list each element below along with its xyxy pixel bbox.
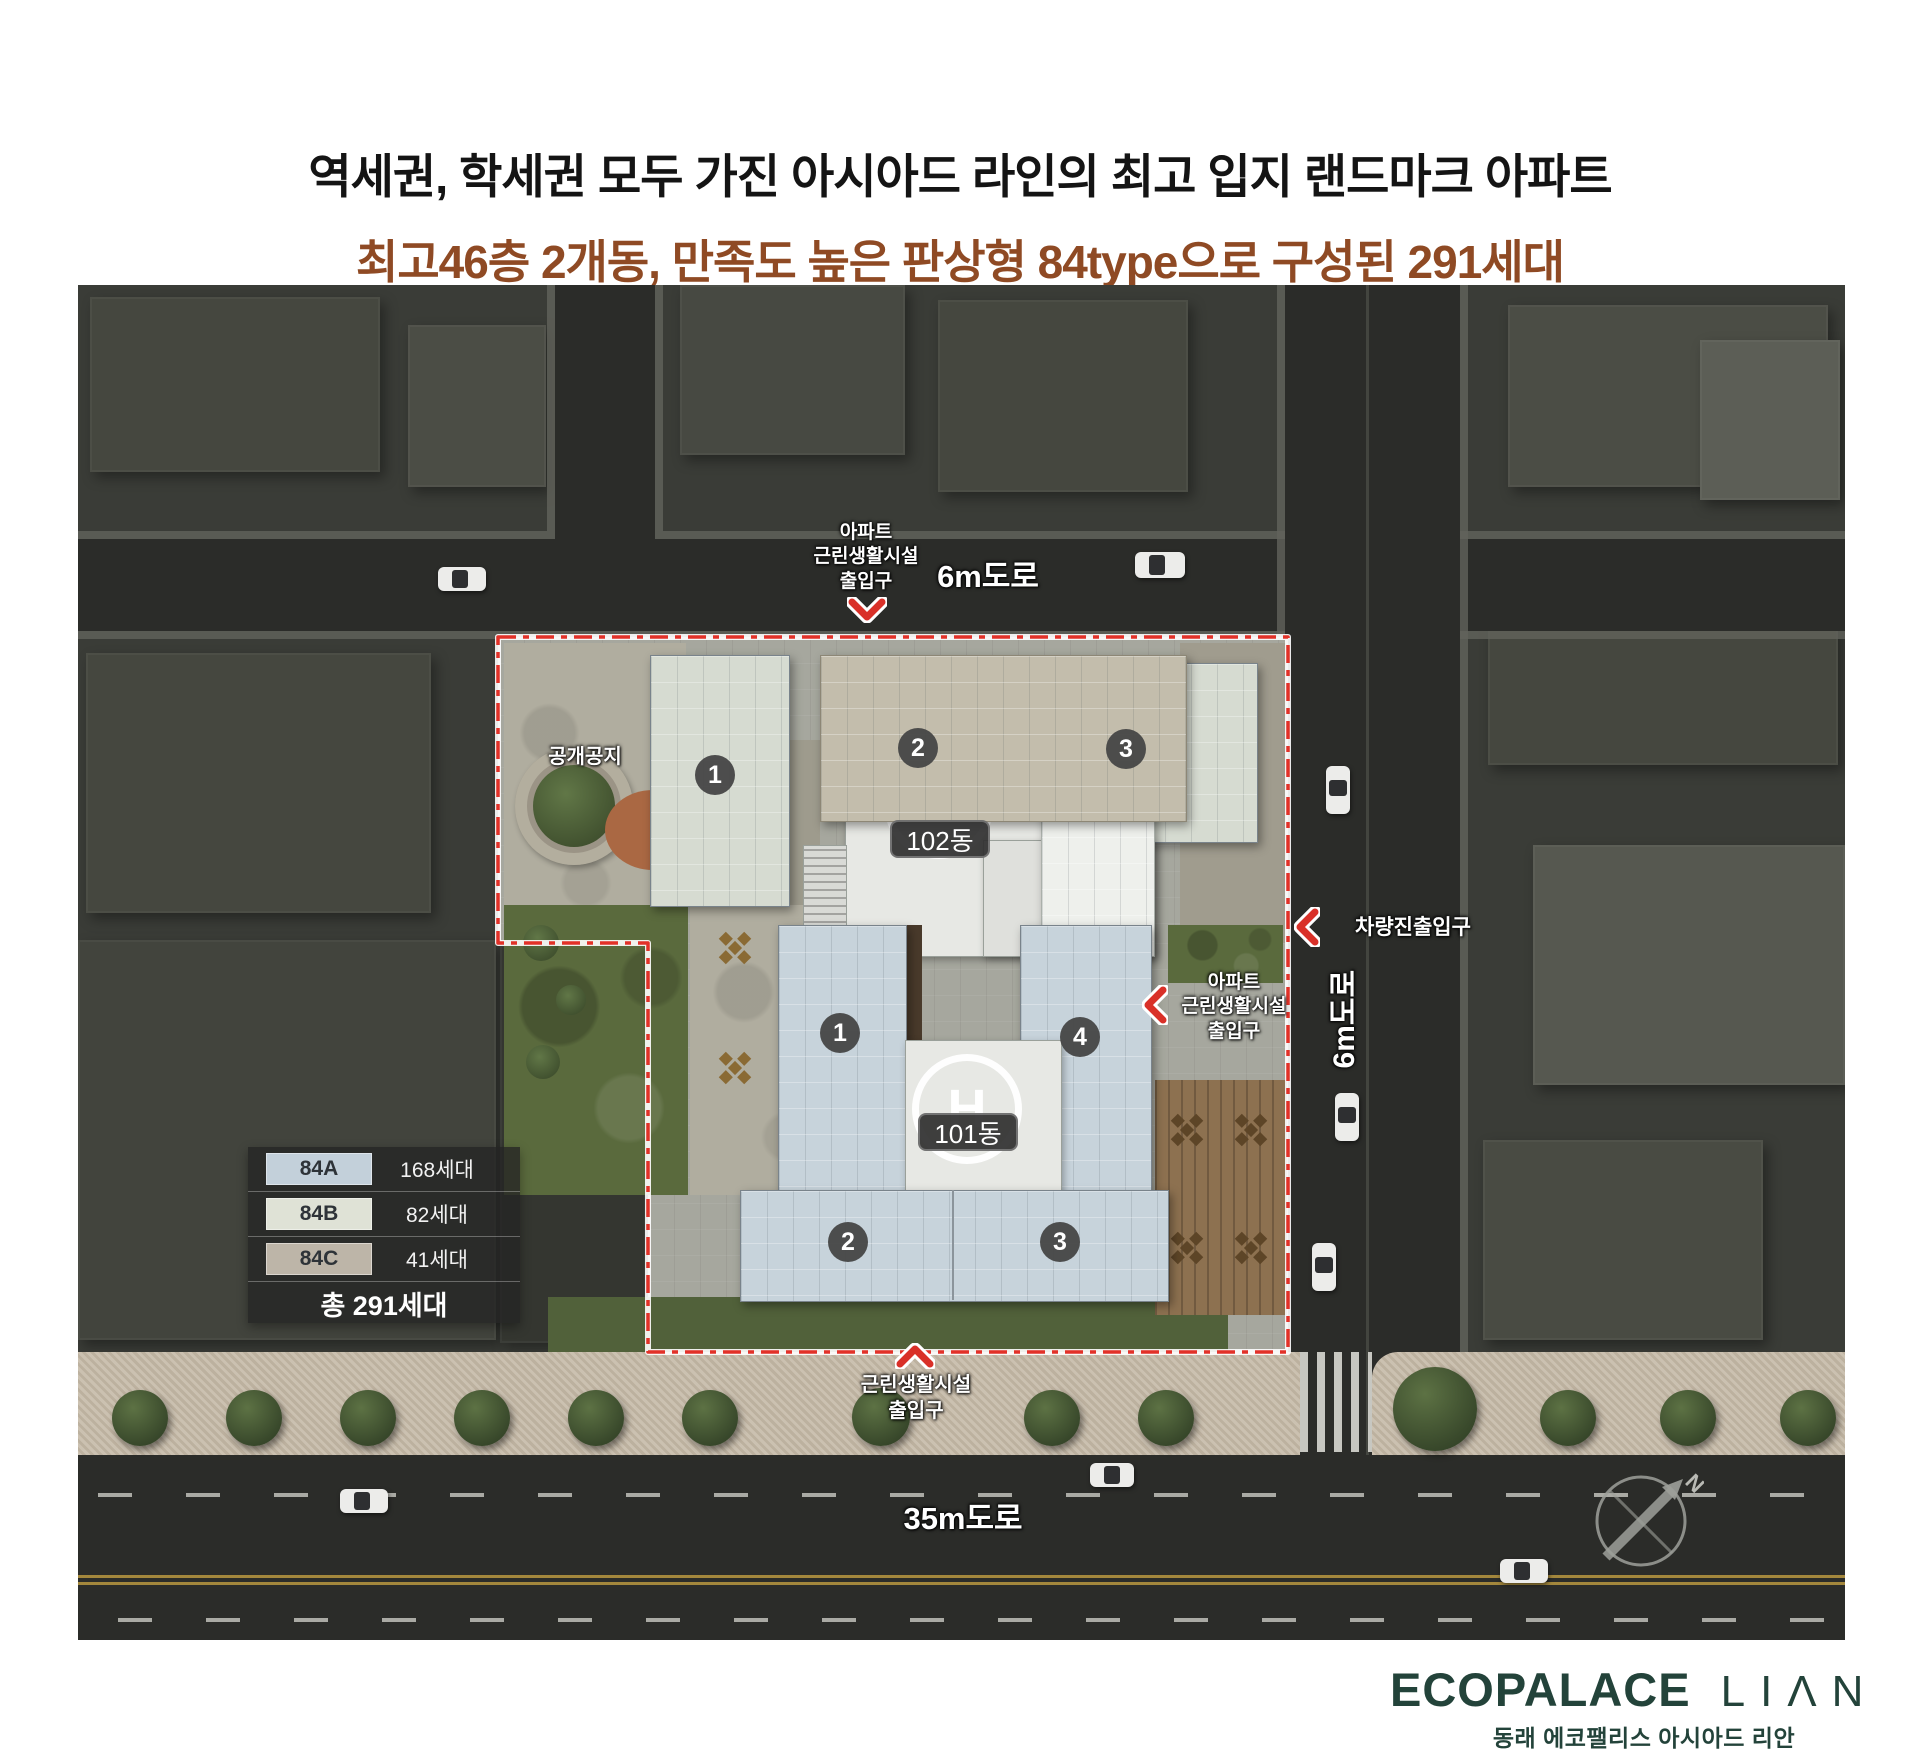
road-edge: [547, 285, 555, 531]
unit-circle-101-3: 3: [1040, 1222, 1080, 1262]
brand-wordmark: ECOPALACE LIΛN: [1390, 1662, 1902, 1717]
entrance-arrow-down-icon: [847, 597, 887, 628]
road-top-east: [1468, 539, 1845, 631]
unit-circle-101-2: 2: [828, 1222, 868, 1262]
street-tree: [226, 1390, 282, 1446]
street-tree: [112, 1390, 168, 1446]
background-building: [680, 285, 905, 455]
label-line: 출입구: [1172, 1020, 1296, 1044]
background-building: [938, 300, 1188, 492]
lane-dashes: [118, 1618, 1845, 1622]
street-tree: [568, 1390, 624, 1446]
road-edge: [655, 285, 663, 531]
shrub: [556, 985, 586, 1015]
apt-entrance-right-label: 아파트 근린생활시설 출입구: [1172, 971, 1296, 1044]
unit-circle-102-1: 1: [695, 755, 735, 795]
unit-circle-101-1: 1: [820, 1013, 860, 1053]
label-line: 근린생활시설: [1172, 995, 1296, 1019]
car: [438, 567, 486, 591]
label-line: 아파트: [800, 521, 932, 545]
page-background: 역세권, 학세권 모두 가진 아시아드 라인의 최고 입지 랜드마크 아파트 최…: [0, 0, 1920, 1755]
background-building: [408, 325, 546, 487]
unit-circle-101-4: 4: [1060, 1017, 1100, 1057]
road-edge: [1460, 285, 1468, 1393]
retail-entrance-bottom-label: 근린생활시설 출입구: [846, 1373, 986, 1424]
retail-arrow-left-icon: [1142, 985, 1168, 1030]
label-line: 출입구: [846, 1399, 986, 1425]
wood-deck: [1155, 1080, 1287, 1315]
vehicle-arrow-left-icon: [1294, 907, 1320, 952]
retail-arrow-up-icon: [895, 1343, 935, 1374]
compass-north-label: N: [1680, 1469, 1704, 1498]
garden: [548, 1297, 1228, 1352]
headline-primary: 역세권, 학세권 모두 가진 아시아드 라인의 최고 입지 랜드마크 아파트: [0, 138, 1920, 207]
car: [1500, 1559, 1548, 1583]
label-line: 아파트: [1172, 971, 1296, 995]
car: [1326, 766, 1350, 814]
street-tree: [340, 1390, 396, 1446]
car: [1312, 1243, 1336, 1291]
street-tree: [682, 1390, 738, 1446]
background-building: [86, 653, 431, 913]
legend-chip-84B: 84B: [266, 1198, 372, 1230]
label-line: 근린생활시설: [846, 1373, 986, 1399]
brand-ecopalace: ECOPALACE: [1390, 1662, 1691, 1717]
street-tree: [454, 1390, 510, 1446]
compass: N: [1584, 1457, 1704, 1577]
street-tree: [1393, 1367, 1477, 1451]
stair-detail: [803, 845, 847, 932]
headline-secondary: 최고46층 2개동, 만족도 높은 판상형 84type으로 구성된 291세대: [0, 226, 1920, 292]
building-102-label: 102동: [890, 820, 990, 858]
car: [340, 1489, 388, 1513]
center-line-yellow: [78, 1575, 1845, 1578]
site-plan-rendering: H 102동 1 2 3 H 101동 1 4 2 3: [78, 285, 1845, 1640]
car: [1090, 1463, 1134, 1487]
unit-legend: 84A 168세대 84B 82세대 84C 41세대 총 291세대: [248, 1147, 520, 1323]
road-label-bottom: 35m도로: [878, 1499, 1048, 1539]
legend-row: 84A 168세대: [248, 1147, 520, 1192]
legend-count-84A: 168세대: [372, 1154, 502, 1184]
background-building: [1700, 340, 1840, 500]
slab-divider: [952, 1190, 954, 1300]
open-space-label: 공개공지: [530, 745, 640, 771]
building-101-slab: [740, 1190, 1169, 1302]
center-line-yellow: [78, 1582, 1845, 1585]
car: [1335, 1093, 1359, 1141]
vehicle-entrance-label: 차량진출입구: [1328, 915, 1498, 942]
crosswalk: [1300, 1352, 1372, 1452]
building-101-label: 101동: [918, 1113, 1018, 1151]
background-building: [1483, 1140, 1763, 1340]
road-topleft-vertical: [555, 285, 655, 539]
legend-count-84C: 41세대: [372, 1244, 502, 1274]
road-label-right: 6m도로: [1326, 964, 1364, 1074]
street-tree: [1660, 1390, 1716, 1446]
brand-lian: LIΛN: [1721, 1667, 1879, 1717]
car: [1135, 552, 1185, 578]
road-lane-line: [1366, 285, 1369, 1455]
plaza-tree: [533, 765, 615, 847]
street-tree: [1024, 1390, 1080, 1446]
background-building: [1533, 845, 1845, 1085]
street-tree: [1138, 1390, 1194, 1446]
legend-chip-84C: 84C: [266, 1243, 372, 1275]
building-101-wing1: [778, 925, 907, 1192]
legend-row: 84B 82세대: [248, 1192, 520, 1237]
brand-tagline: 동래 에코팰리스 아시아드 리안: [1424, 1719, 1864, 1753]
street-tree: [1540, 1390, 1596, 1446]
road-label-top: 6m도로: [908, 557, 1068, 597]
shrub: [526, 1045, 560, 1079]
road-edge: [78, 531, 1845, 539]
road-top-6m: [78, 539, 1468, 631]
legend-row: 84C 41세대: [248, 1237, 520, 1282]
legend-chip-84A: 84A: [266, 1153, 372, 1185]
brand-lockup: ECOPALACE LIΛN 동래 에코팰리스 아시아드 리안: [1390, 1662, 1902, 1753]
street-tree: [1780, 1390, 1836, 1446]
legend-count-84B: 82세대: [372, 1199, 502, 1229]
legend-total: 총 291세대: [248, 1282, 520, 1325]
background-building: [90, 297, 380, 472]
road-bottom-35m: [78, 1455, 1845, 1640]
shrub: [523, 925, 559, 961]
unit-circle-102-3: 3: [1106, 729, 1146, 769]
unit-circle-102-2: 2: [898, 728, 938, 768]
